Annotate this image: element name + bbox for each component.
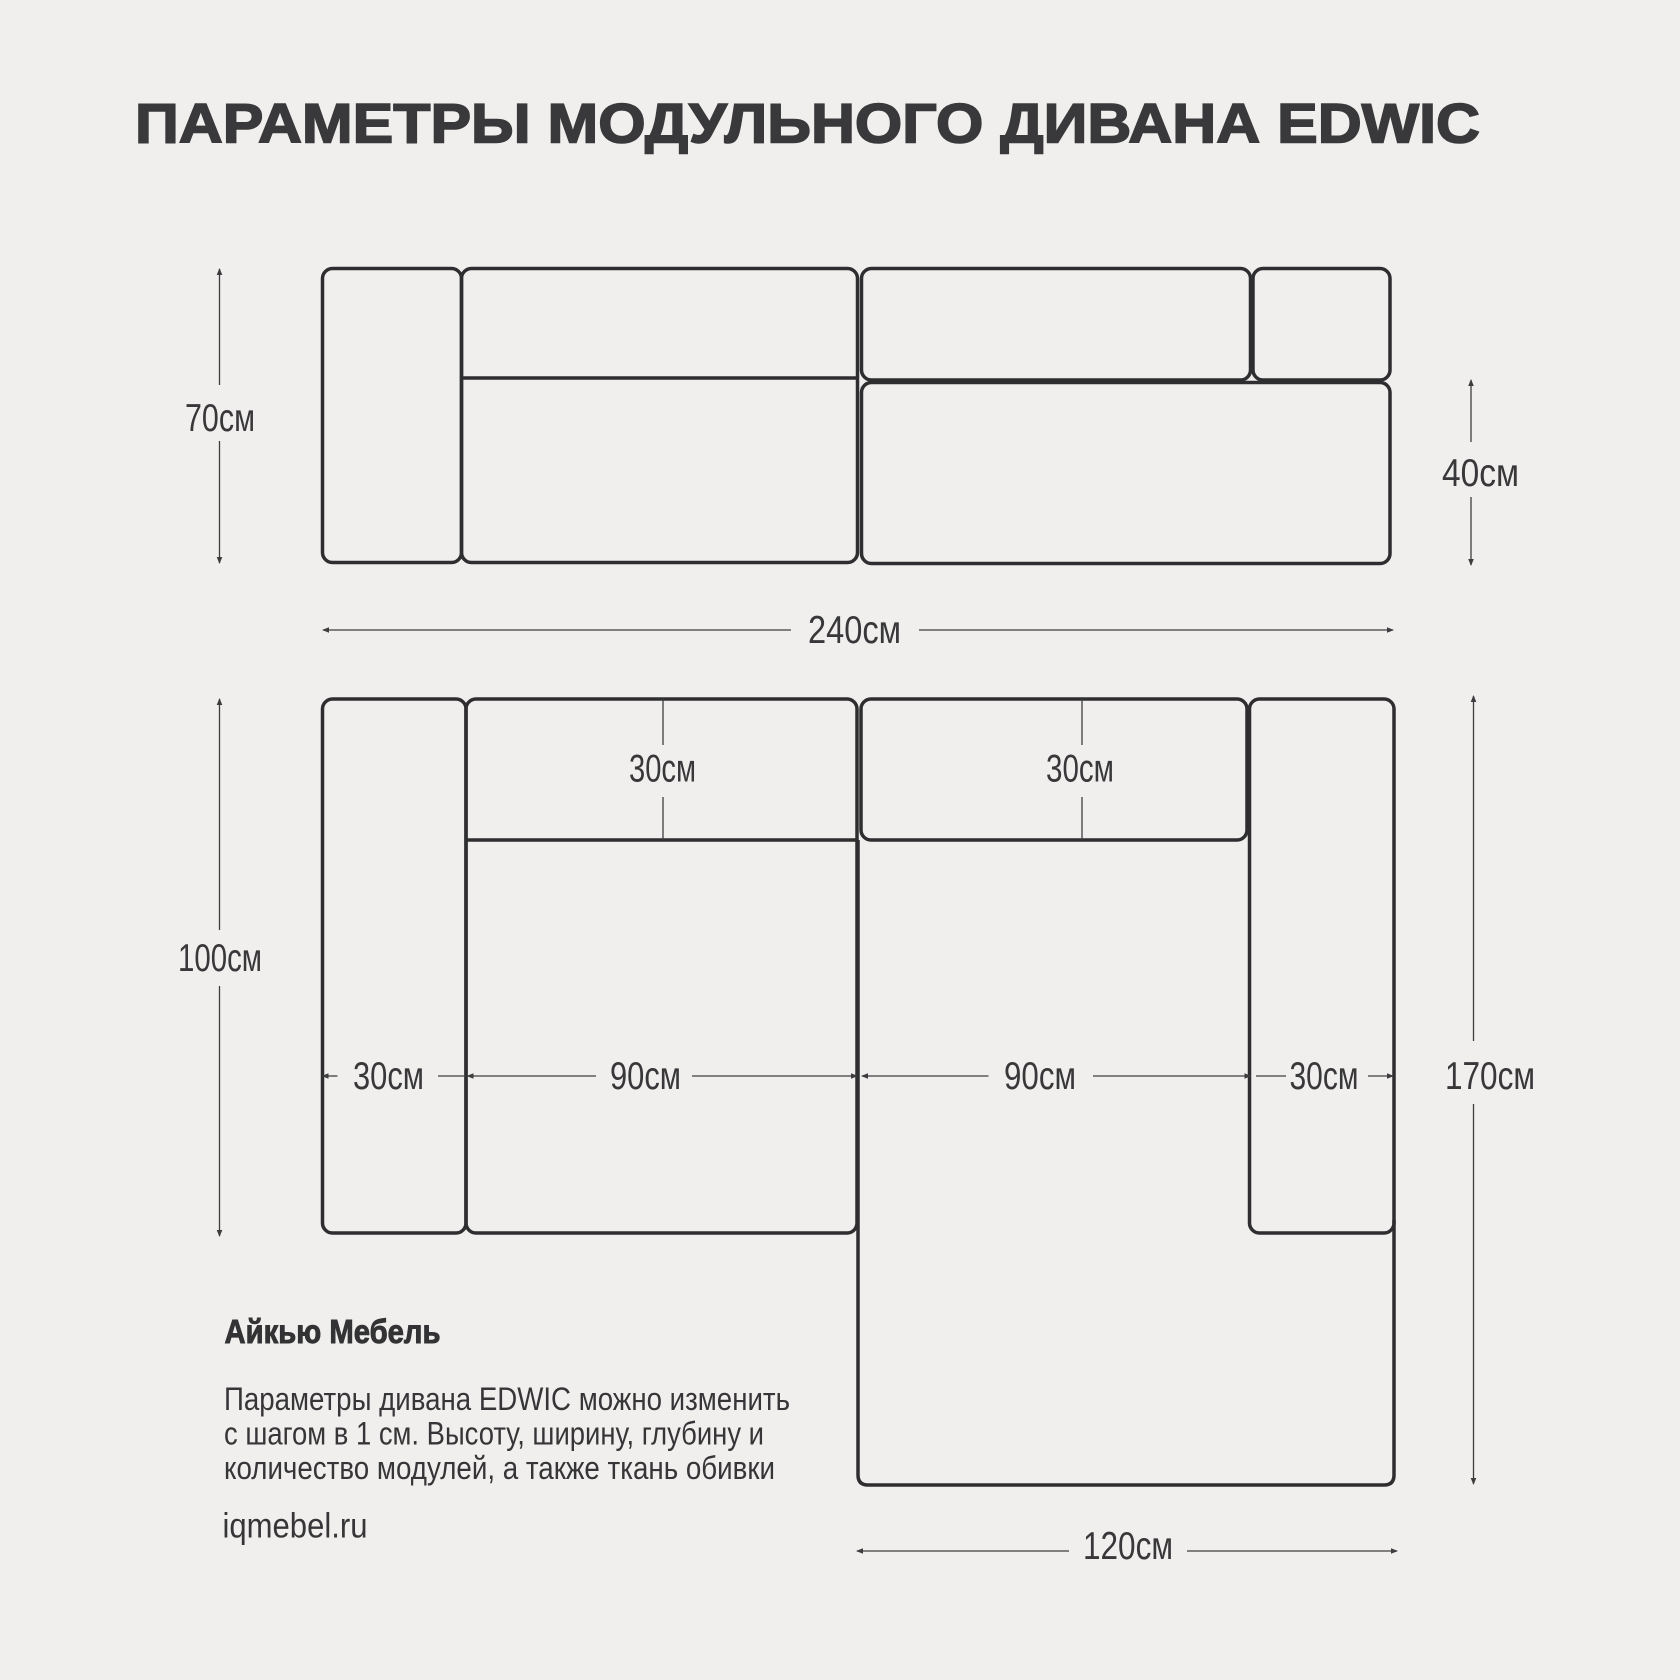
svg-text:100см: 100см — [178, 937, 262, 980]
svg-text:120см: 120см — [1083, 1525, 1173, 1568]
svg-text:90см: 90см — [610, 1055, 681, 1098]
svg-text:30см: 30см — [629, 748, 696, 791]
svg-text:количество модулей, а также тк: количество модулей, а также ткань обивки — [224, 1450, 775, 1486]
svg-text:240см: 240см — [808, 609, 901, 652]
svg-text:90см: 90см — [1004, 1055, 1076, 1098]
svg-text:с шагом в 1 см. Высоту, ширину: с шагом в 1 см. Высоту, ширину, глубину … — [224, 1416, 764, 1452]
svg-text:Айкью Мебель: Айкью Мебель — [225, 1313, 441, 1350]
svg-text:70см: 70см — [185, 397, 255, 440]
svg-text:iqmebel.ru: iqmebel.ru — [223, 1507, 368, 1546]
svg-text:ПАРАМЕТРЫ МОДУЛЬНОГО ДИВАНА ED: ПАРАМЕТРЫ МОДУЛЬНОГО ДИВАНА EDWIC — [135, 92, 1480, 155]
svg-text:40см: 40см — [1442, 452, 1519, 495]
svg-text:30см: 30см — [1046, 748, 1114, 791]
svg-text:30см: 30см — [353, 1055, 424, 1098]
svg-text:Параметры дивана EDWIC можно и: Параметры дивана EDWIC можно изменить — [224, 1381, 790, 1417]
svg-text:170см: 170см — [1445, 1055, 1535, 1098]
svg-text:30см: 30см — [1290, 1055, 1359, 1098]
